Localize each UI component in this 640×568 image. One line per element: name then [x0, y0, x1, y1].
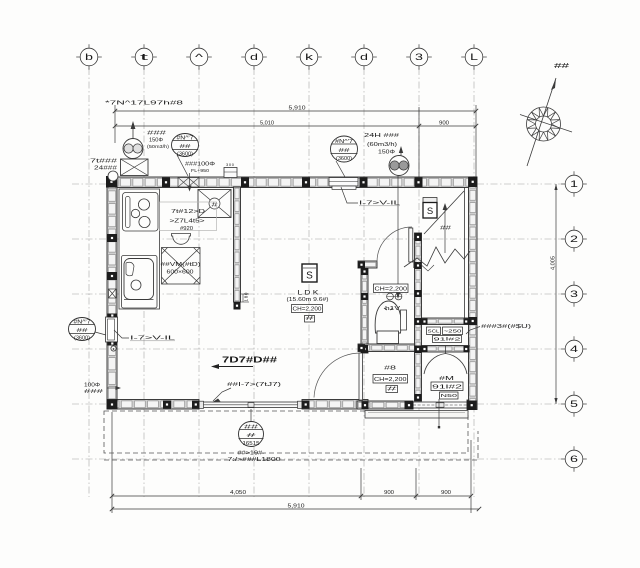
svg-text:###: ###	[147, 131, 168, 137]
svg-text:600×600: 600×600	[167, 270, 194, 276]
svg-text:#: #	[247, 433, 257, 439]
svg-text:91l#2: 91l#2	[434, 337, 462, 343]
svg-text:(60m3/h): (60m3/h)	[367, 142, 397, 148]
svg-text:4,050: 4,050	[230, 490, 246, 496]
svg-text:L D K: L D K	[298, 291, 319, 297]
svg-text:3: 3	[415, 52, 423, 62]
svg-text:#8: #8	[384, 366, 396, 372]
svg-text:4: 4	[570, 344, 578, 354]
svg-text:#920: #920	[180, 226, 193, 232]
svg-text:5,910: 5,910	[288, 504, 305, 510]
svg-text:#M: #M	[439, 376, 454, 382]
svg-text:(3600): (3600)	[74, 336, 90, 342]
svg-text:d: d	[250, 52, 258, 62]
svg-text:24H ###: 24H ###	[364, 133, 400, 139]
svg-text:k: k	[305, 52, 314, 62]
svg-text:5,010: 5,010	[260, 120, 274, 126]
svg-text:2: 2	[570, 234, 578, 244]
svg-text:##: ##	[554, 61, 570, 70]
svg-text:300: 300	[226, 162, 235, 167]
svg-text:7t###: 7t###	[90, 159, 119, 165]
svg-text:150Φ: 150Φ	[378, 150, 395, 156]
svg-text:##VM(#tD): ##VM(#tD)	[161, 262, 201, 268]
svg-text:#: #	[212, 201, 219, 208]
svg-text:#N^'7: #N^'7	[335, 139, 353, 145]
svg-text:CH=2,200: CH=2,200	[374, 377, 407, 383]
svg-text:24###: 24###	[94, 166, 118, 172]
svg-text:150Φ: 150Φ	[149, 138, 163, 144]
svg-text:d: d	[360, 52, 368, 62]
svg-text:*7N^17L97h#8: *7N^17L97h#8	[105, 101, 183, 107]
svg-text:#N^'7: #N^'7	[74, 320, 91, 326]
svg-text:3: 3	[570, 289, 578, 299]
svg-text:(3600): (3600)	[177, 152, 193, 158]
svg-text:##: ##	[244, 425, 259, 431]
svg-text:16515: 16515	[243, 441, 260, 447]
svg-text:h1V: h1V	[385, 306, 401, 312]
svg-text:SCL: SCL	[428, 329, 440, 335]
svg-text:CH=2,200: CH=2,200	[293, 307, 322, 313]
svg-text:###100Φ: ###100Φ	[185, 162, 215, 168]
svg-text:100Φ: 100Φ	[84, 383, 100, 389]
svg-text:S: S	[427, 206, 433, 217]
svg-text:FL+950: FL+950	[191, 168, 209, 174]
svg-text:##: ##	[440, 226, 451, 232]
svg-text:b: b	[85, 52, 93, 62]
svg-text:L: L	[470, 52, 478, 62]
svg-text:7D7#D##: 7D7#D##	[222, 356, 278, 365]
svg-text:5,910: 5,910	[289, 106, 306, 112]
svg-text:4,005: 4,005	[551, 256, 557, 270]
svg-text:###: ###	[84, 389, 103, 395]
svg-text:#N^'7: #N^'7	[177, 136, 194, 142]
svg-text:##I-7>(7tJ7): ##I-7>(7tJ7)	[227, 382, 281, 388]
svg-text:180: 180	[244, 292, 249, 301]
svg-text:5: 5	[570, 399, 578, 409]
svg-text:7:/>###L1800: 7:/>###L1800	[228, 457, 281, 463]
svg-text:##: ##	[77, 328, 88, 334]
svg-text:#: #	[387, 387, 397, 393]
svg-text:(15.60m 9.6#): (15.60m 9.6#)	[287, 297, 329, 303]
svg-text:##>19#-: ##>19#-	[238, 451, 265, 457]
svg-text:(50m3/h): (50m3/h)	[147, 144, 169, 150]
svg-text:900: 900	[439, 120, 449, 126]
svg-text:CH=2,200: CH=2,200	[375, 287, 408, 293]
svg-text:7t#12>D: 7t#12>D	[171, 209, 205, 215]
svg-text:900: 900	[441, 490, 451, 496]
svg-text:###3#(#$U): ###3#(#$U)	[481, 324, 531, 330]
svg-text:##: ##	[180, 144, 191, 150]
svg-text:S: S	[306, 271, 313, 282]
svg-text:##: ##	[339, 148, 350, 154]
svg-text:(3600): (3600)	[336, 156, 352, 162]
svg-text:900: 900	[384, 490, 394, 496]
svg-text:91l#2: 91l#2	[432, 385, 462, 391]
svg-text:~250: ~250	[444, 329, 463, 335]
svg-text:N50: N50	[441, 393, 458, 398]
svg-text:6: 6	[570, 454, 578, 464]
svg-text:#: #	[306, 316, 315, 322]
svg-text:>Z7L4t5>: >Z7L4t5>	[170, 219, 205, 225]
svg-text:1: 1	[570, 179, 578, 189]
